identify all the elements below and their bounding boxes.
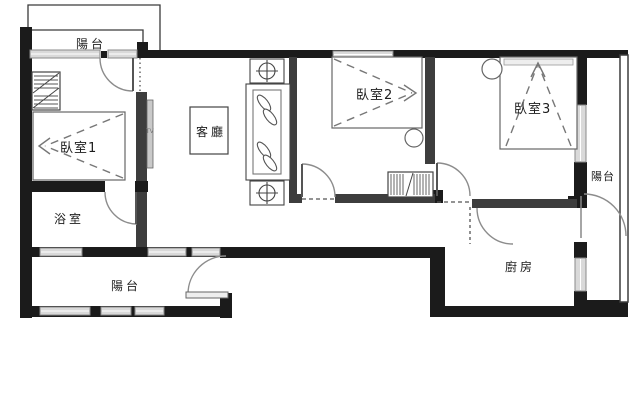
room-label-balcony-right: 陽台 bbox=[591, 169, 615, 183]
stool-icon-bedroom2 bbox=[405, 129, 423, 147]
room-label-bedroom1: 臥室1 bbox=[60, 140, 97, 156]
wardrobe-icon bbox=[32, 72, 60, 110]
room-label-balcony-top: 陽台 bbox=[76, 36, 106, 51]
room-label-bathroom: 浴室 bbox=[54, 211, 84, 226]
room-label-balcony-bottom: 陽台 bbox=[111, 278, 141, 293]
room-label-bedroom2: 臥室2 bbox=[356, 87, 393, 103]
dresser-icon-bedroom2 bbox=[388, 172, 433, 197]
stool-icon-bedroom3 bbox=[482, 59, 502, 79]
floorplan-page: TV 陽台 臥室1 客廳 臥室2 臥室 bbox=[0, 0, 640, 415]
speaker-bottom-icon bbox=[250, 181, 284, 205]
speaker-top-icon bbox=[250, 59, 284, 83]
door-bedroom1-balcony bbox=[100, 58, 140, 95]
floorplan-svg: TV 陽台 臥室1 客廳 臥室2 臥室 bbox=[0, 0, 640, 415]
door-bathroom bbox=[105, 192, 137, 224]
door-bedroom2 bbox=[302, 164, 335, 199]
room-label-kitchen: 廚房 bbox=[505, 259, 535, 274]
room-label-bedroom3: 臥室3 bbox=[514, 101, 551, 117]
door-balcony-bottom bbox=[186, 256, 228, 298]
door-kitchen bbox=[470, 207, 513, 244]
tv-label: TV bbox=[145, 128, 155, 135]
right-balcony-outer-wall bbox=[620, 55, 628, 302]
cabinet-icon bbox=[246, 84, 290, 180]
room-label-living-room: 客廳 bbox=[196, 124, 226, 139]
